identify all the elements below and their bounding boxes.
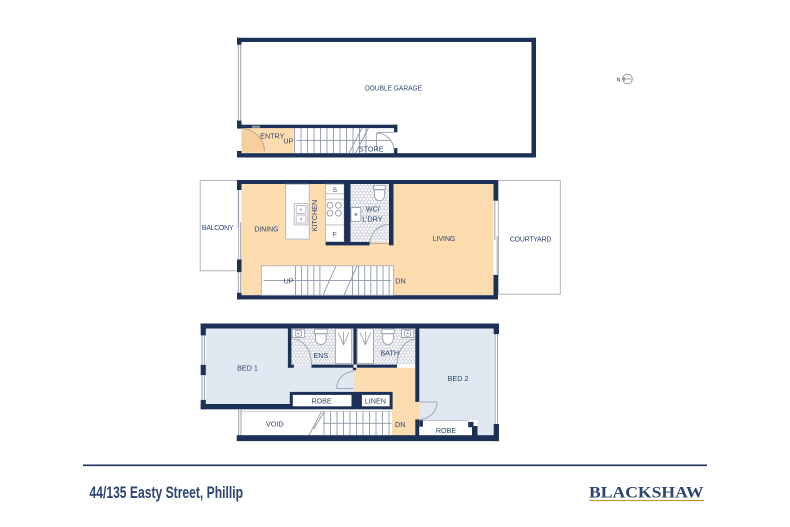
svg-text:UP: UP xyxy=(284,276,294,285)
svg-text:BED 1: BED 1 xyxy=(237,363,258,372)
svg-text:WC/: WC/ xyxy=(366,204,380,213)
svg-text:L’DRY: L’DRY xyxy=(362,214,382,223)
svg-text:LINEN: LINEN xyxy=(365,397,386,406)
svg-text:DN: DN xyxy=(395,420,405,429)
svg-text:F: F xyxy=(333,232,337,239)
svg-text:BALCONY: BALCONY xyxy=(202,225,234,232)
svg-text:STORE: STORE xyxy=(359,144,384,153)
svg-text:BED 2: BED 2 xyxy=(448,374,469,383)
svg-text:ENS: ENS xyxy=(314,351,329,360)
svg-text:BATH: BATH xyxy=(380,349,399,358)
svg-text:44/135 Easty Street, Phillip: 44/135 Easty Street, Phillip xyxy=(90,483,244,502)
svg-text:COURTYARD: COURTYARD xyxy=(510,236,551,243)
svg-text:N: N xyxy=(617,77,621,83)
svg-text:KITCHEN: KITCHEN xyxy=(310,200,319,232)
svg-text:UP: UP xyxy=(283,136,293,145)
svg-text:VOID: VOID xyxy=(266,419,284,428)
svg-text:S: S xyxy=(333,187,338,194)
svg-text:DINING: DINING xyxy=(254,226,278,233)
svg-text:ENTRY: ENTRY xyxy=(260,131,284,140)
svg-text:DOUBLE GARAGE: DOUBLE GARAGE xyxy=(365,84,422,93)
svg-text:DN: DN xyxy=(395,276,405,285)
svg-text:ROBE: ROBE xyxy=(311,397,332,406)
svg-text:LIVING: LIVING xyxy=(433,236,456,243)
svg-text:BLACKSHAW: BLACKSHAW xyxy=(589,485,704,502)
svg-text:ROBE: ROBE xyxy=(436,426,457,435)
